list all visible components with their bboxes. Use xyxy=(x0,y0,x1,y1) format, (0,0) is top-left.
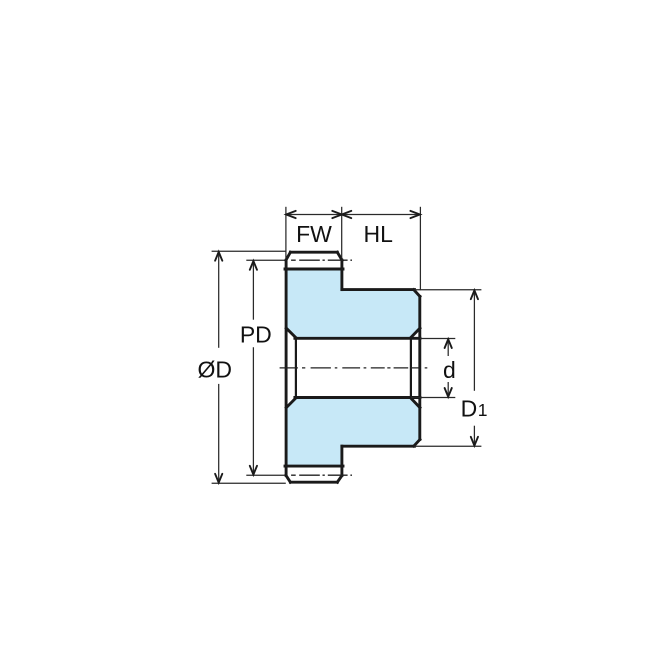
svg-text:ØD: ØD xyxy=(198,357,233,383)
svg-text:FW: FW xyxy=(296,221,332,247)
svg-text:D: D xyxy=(461,395,478,421)
svg-text:1: 1 xyxy=(478,400,488,420)
svg-text:d: d xyxy=(443,357,456,383)
svg-text:PD: PD xyxy=(240,321,272,347)
svg-text:HL: HL xyxy=(363,221,393,247)
